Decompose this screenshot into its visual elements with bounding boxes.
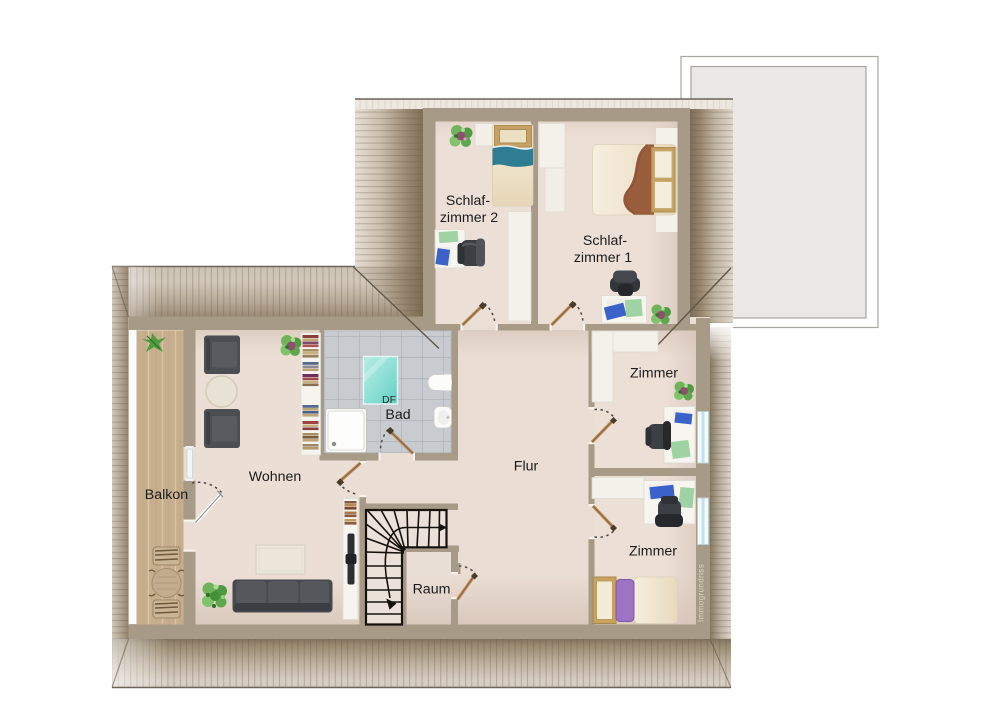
svg-text:zimmer 1: zimmer 1 — [574, 250, 632, 266]
svg-text:DF: DF — [382, 394, 396, 406]
svg-text:Schlaf-: Schlaf- — [583, 233, 627, 249]
svg-text:Zimmer: Zimmer — [630, 366, 678, 382]
svg-text:Raum: Raum — [413, 582, 451, 598]
svg-text:Schlaf-: Schlaf- — [446, 193, 490, 209]
svg-text:Zimmer: Zimmer — [629, 544, 677, 560]
svg-text:Flur: Flur — [514, 459, 539, 475]
svg-text:Wohnen: Wohnen — [249, 469, 302, 485]
svg-text:Bad: Bad — [385, 407, 410, 423]
svg-text:Immogrundriss: Immogrundriss — [697, 564, 706, 622]
svg-text:Balkon: Balkon — [145, 487, 188, 503]
svg-text:zimmer 2: zimmer 2 — [440, 210, 498, 226]
